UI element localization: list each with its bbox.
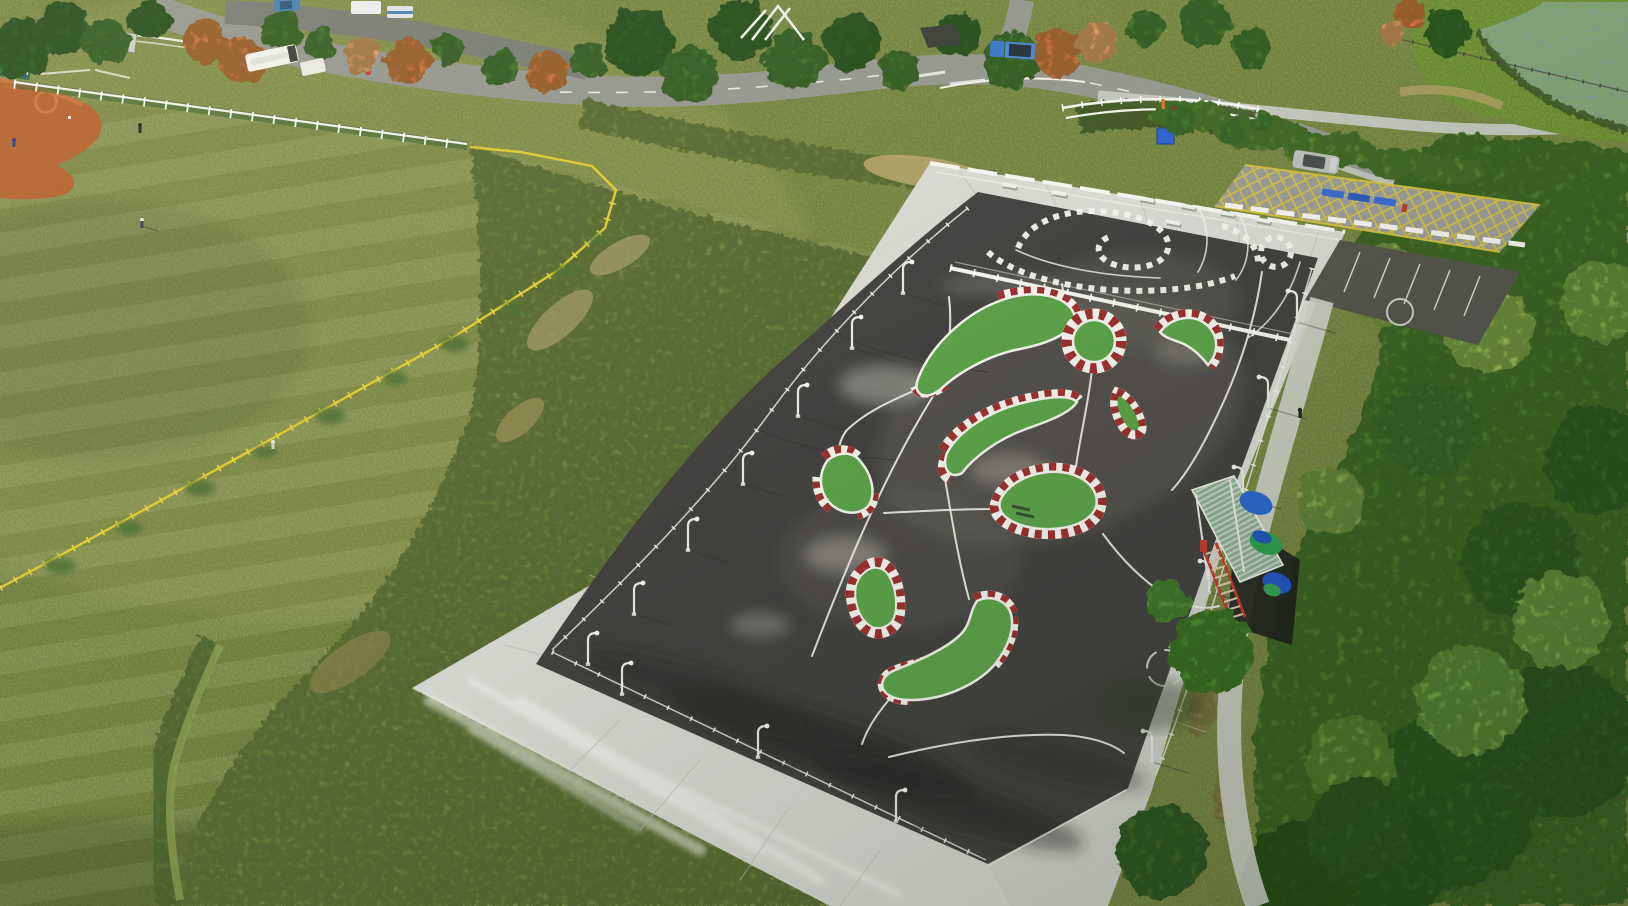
screenshot-root: Aerial drone view of a candy-stripe RC c… — [0, 0, 1628, 906]
lighting — [0, 0, 1628, 906]
aerial-photo: Aerial drone view of a candy-stripe RC c… — [0, 0, 1628, 906]
